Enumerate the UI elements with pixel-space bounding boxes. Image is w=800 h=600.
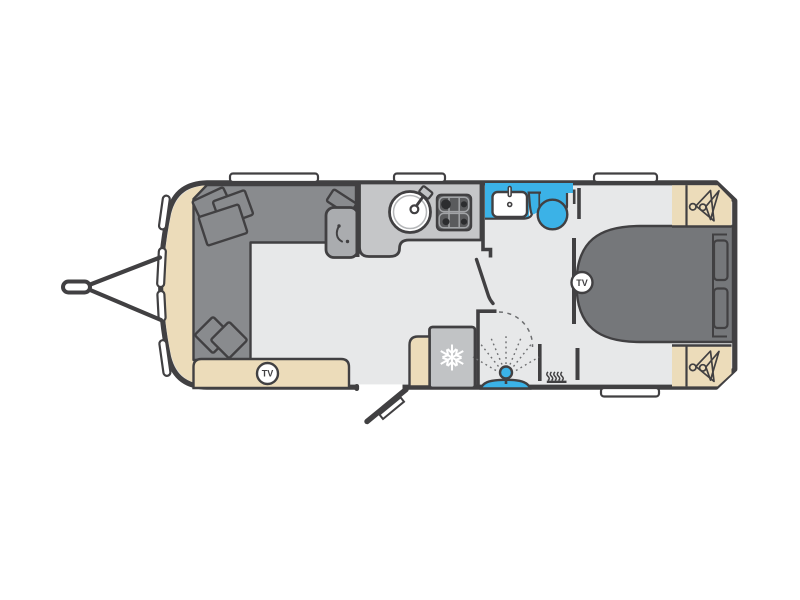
svg-text:TV: TV [576, 278, 588, 288]
svg-text:TV: TV [262, 369, 274, 379]
